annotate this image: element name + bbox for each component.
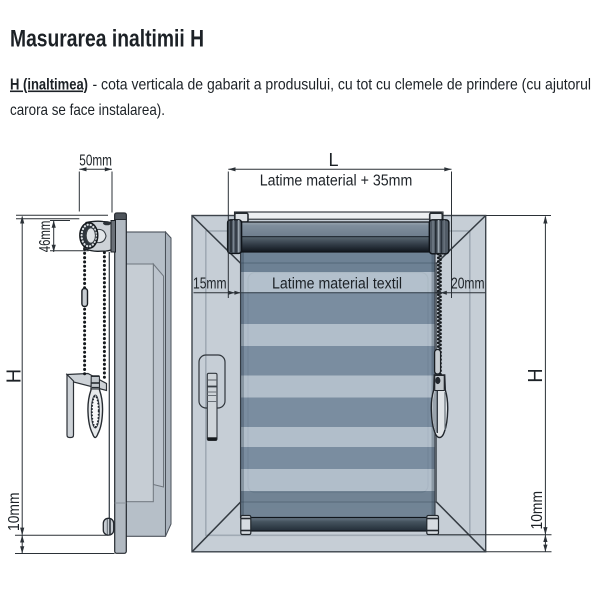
svg-text:Latime material + 35mm: Latime material + 35mm bbox=[260, 173, 413, 190]
svg-text:L: L bbox=[328, 150, 338, 170]
svg-text:H (inaltimea): H (inaltimea) bbox=[10, 77, 88, 94]
svg-text:Latime material textil: Latime material textil bbox=[272, 276, 402, 293]
svg-text:Masurarea inaltimii H: Masurarea inaltimii H bbox=[10, 25, 204, 52]
svg-text:46mm: 46mm bbox=[37, 221, 54, 253]
svg-text:50mm: 50mm bbox=[79, 153, 112, 170]
svg-text:- cota verticala de gabarit a: - cota verticala de gabarit a produsului… bbox=[93, 77, 592, 94]
svg-text:20mm: 20mm bbox=[451, 276, 485, 293]
svg-text:carora se face instalarea).: carora se face instalarea). bbox=[10, 102, 165, 119]
svg-text:H: H bbox=[525, 368, 547, 382]
svg-text:15mm: 15mm bbox=[193, 276, 227, 293]
svg-text:10mm: 10mm bbox=[6, 493, 23, 532]
svg-text:H: H bbox=[4, 369, 26, 383]
svg-text:10mm: 10mm bbox=[529, 491, 546, 530]
